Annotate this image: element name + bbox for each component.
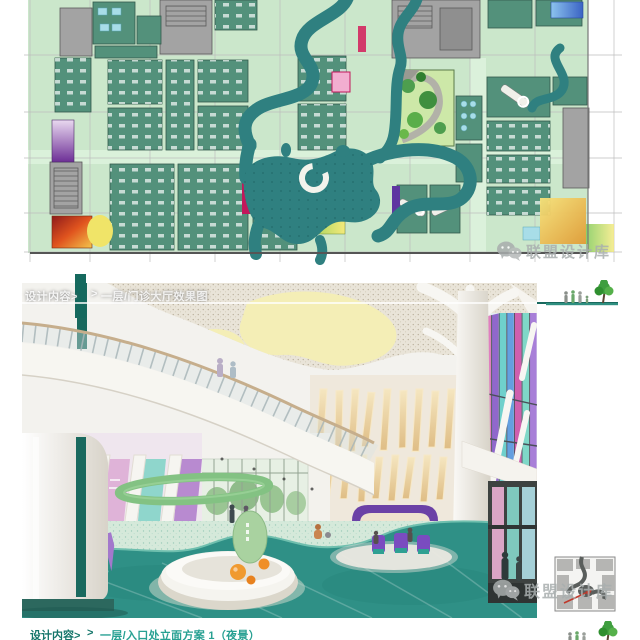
- watermark: 联盟设计库: [492, 578, 614, 602]
- caption-title: 一层/入口处立面方案 1（夜景）: [100, 627, 260, 640]
- green-egg-panel: [233, 511, 267, 563]
- watermark: 联盟设计库: [496, 240, 611, 262]
- wechat-icon: [496, 240, 522, 262]
- tree-people-icon: [546, 280, 618, 306]
- watermark-text: 联盟设计库: [526, 241, 611, 262]
- caption-chevron: >: [87, 627, 93, 639]
- header-chevron: >: [91, 288, 97, 300]
- caption-label: 设计内容>: [30, 627, 80, 640]
- watermark-text: 联盟设计库: [524, 578, 614, 602]
- wechat-icon: [492, 578, 520, 602]
- teal-column-strip: [76, 437, 86, 597]
- tree-people-icon: [550, 621, 622, 640]
- courtyard-garden: [396, 70, 454, 146]
- lobby-rendering: [22, 283, 537, 618]
- floor-plan: [0, 0, 640, 265]
- presentation-page: 设计内容> > 一层/门诊大厅效果图 联盟设计库: [0, 0, 640, 640]
- header-underline: [22, 302, 537, 304]
